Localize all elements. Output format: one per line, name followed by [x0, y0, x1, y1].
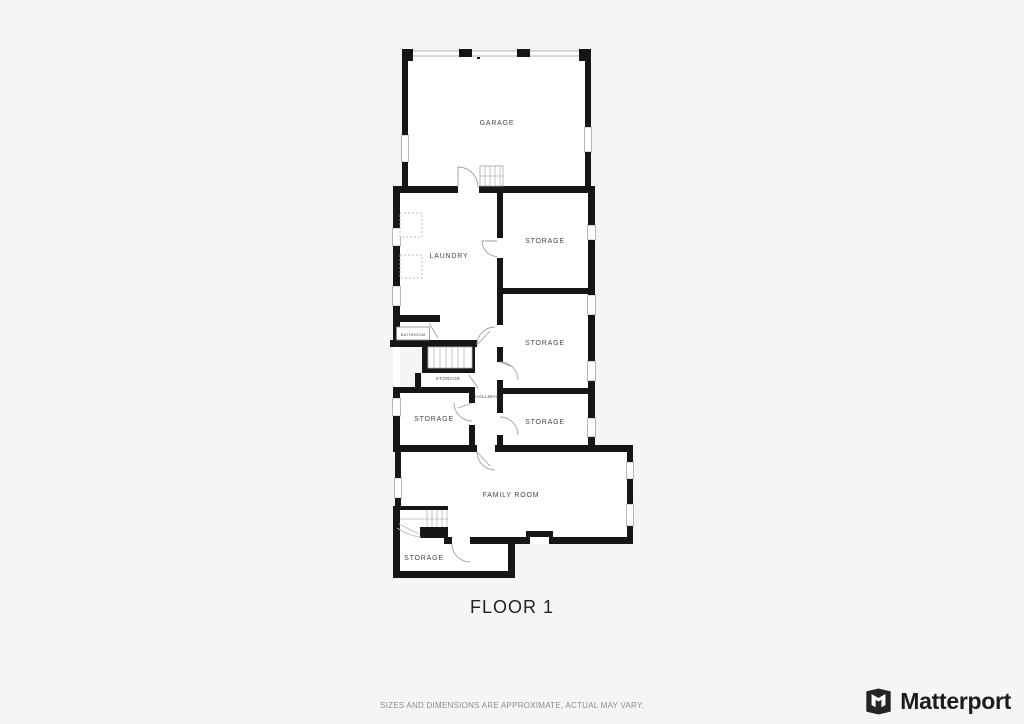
room-label-storage-right-lower: STORAGE: [525, 419, 565, 426]
room-label-storage-bottom: STORAGE: [404, 555, 444, 562]
room-label-storage-middle: STORAGE: [525, 340, 565, 347]
room-label-family-room: FAMILY ROOM: [483, 492, 540, 499]
brand-name: Matterport: [900, 688, 1011, 715]
garage-entry-stairs: [480, 166, 503, 186]
main-stairs: [428, 347, 472, 368]
room-label-storage-left: STORAGE: [414, 416, 454, 423]
matterport-logo-icon: [864, 687, 893, 716]
room-label-laundry: LAUNDRY: [430, 253, 469, 260]
room-label-storage-under-stairs: STORAGE: [436, 376, 461, 381]
room-label-garage: GARAGE: [480, 120, 515, 127]
room-label-hallway: HALLWAY: [475, 394, 499, 399]
room-label-bathroom: BATHROOM: [401, 332, 425, 337]
brand-logo: Matterport: [864, 686, 1011, 717]
floor-title: FLOOR 1: [0, 597, 1024, 618]
room-label-storage-top: STORAGE: [525, 238, 565, 245]
